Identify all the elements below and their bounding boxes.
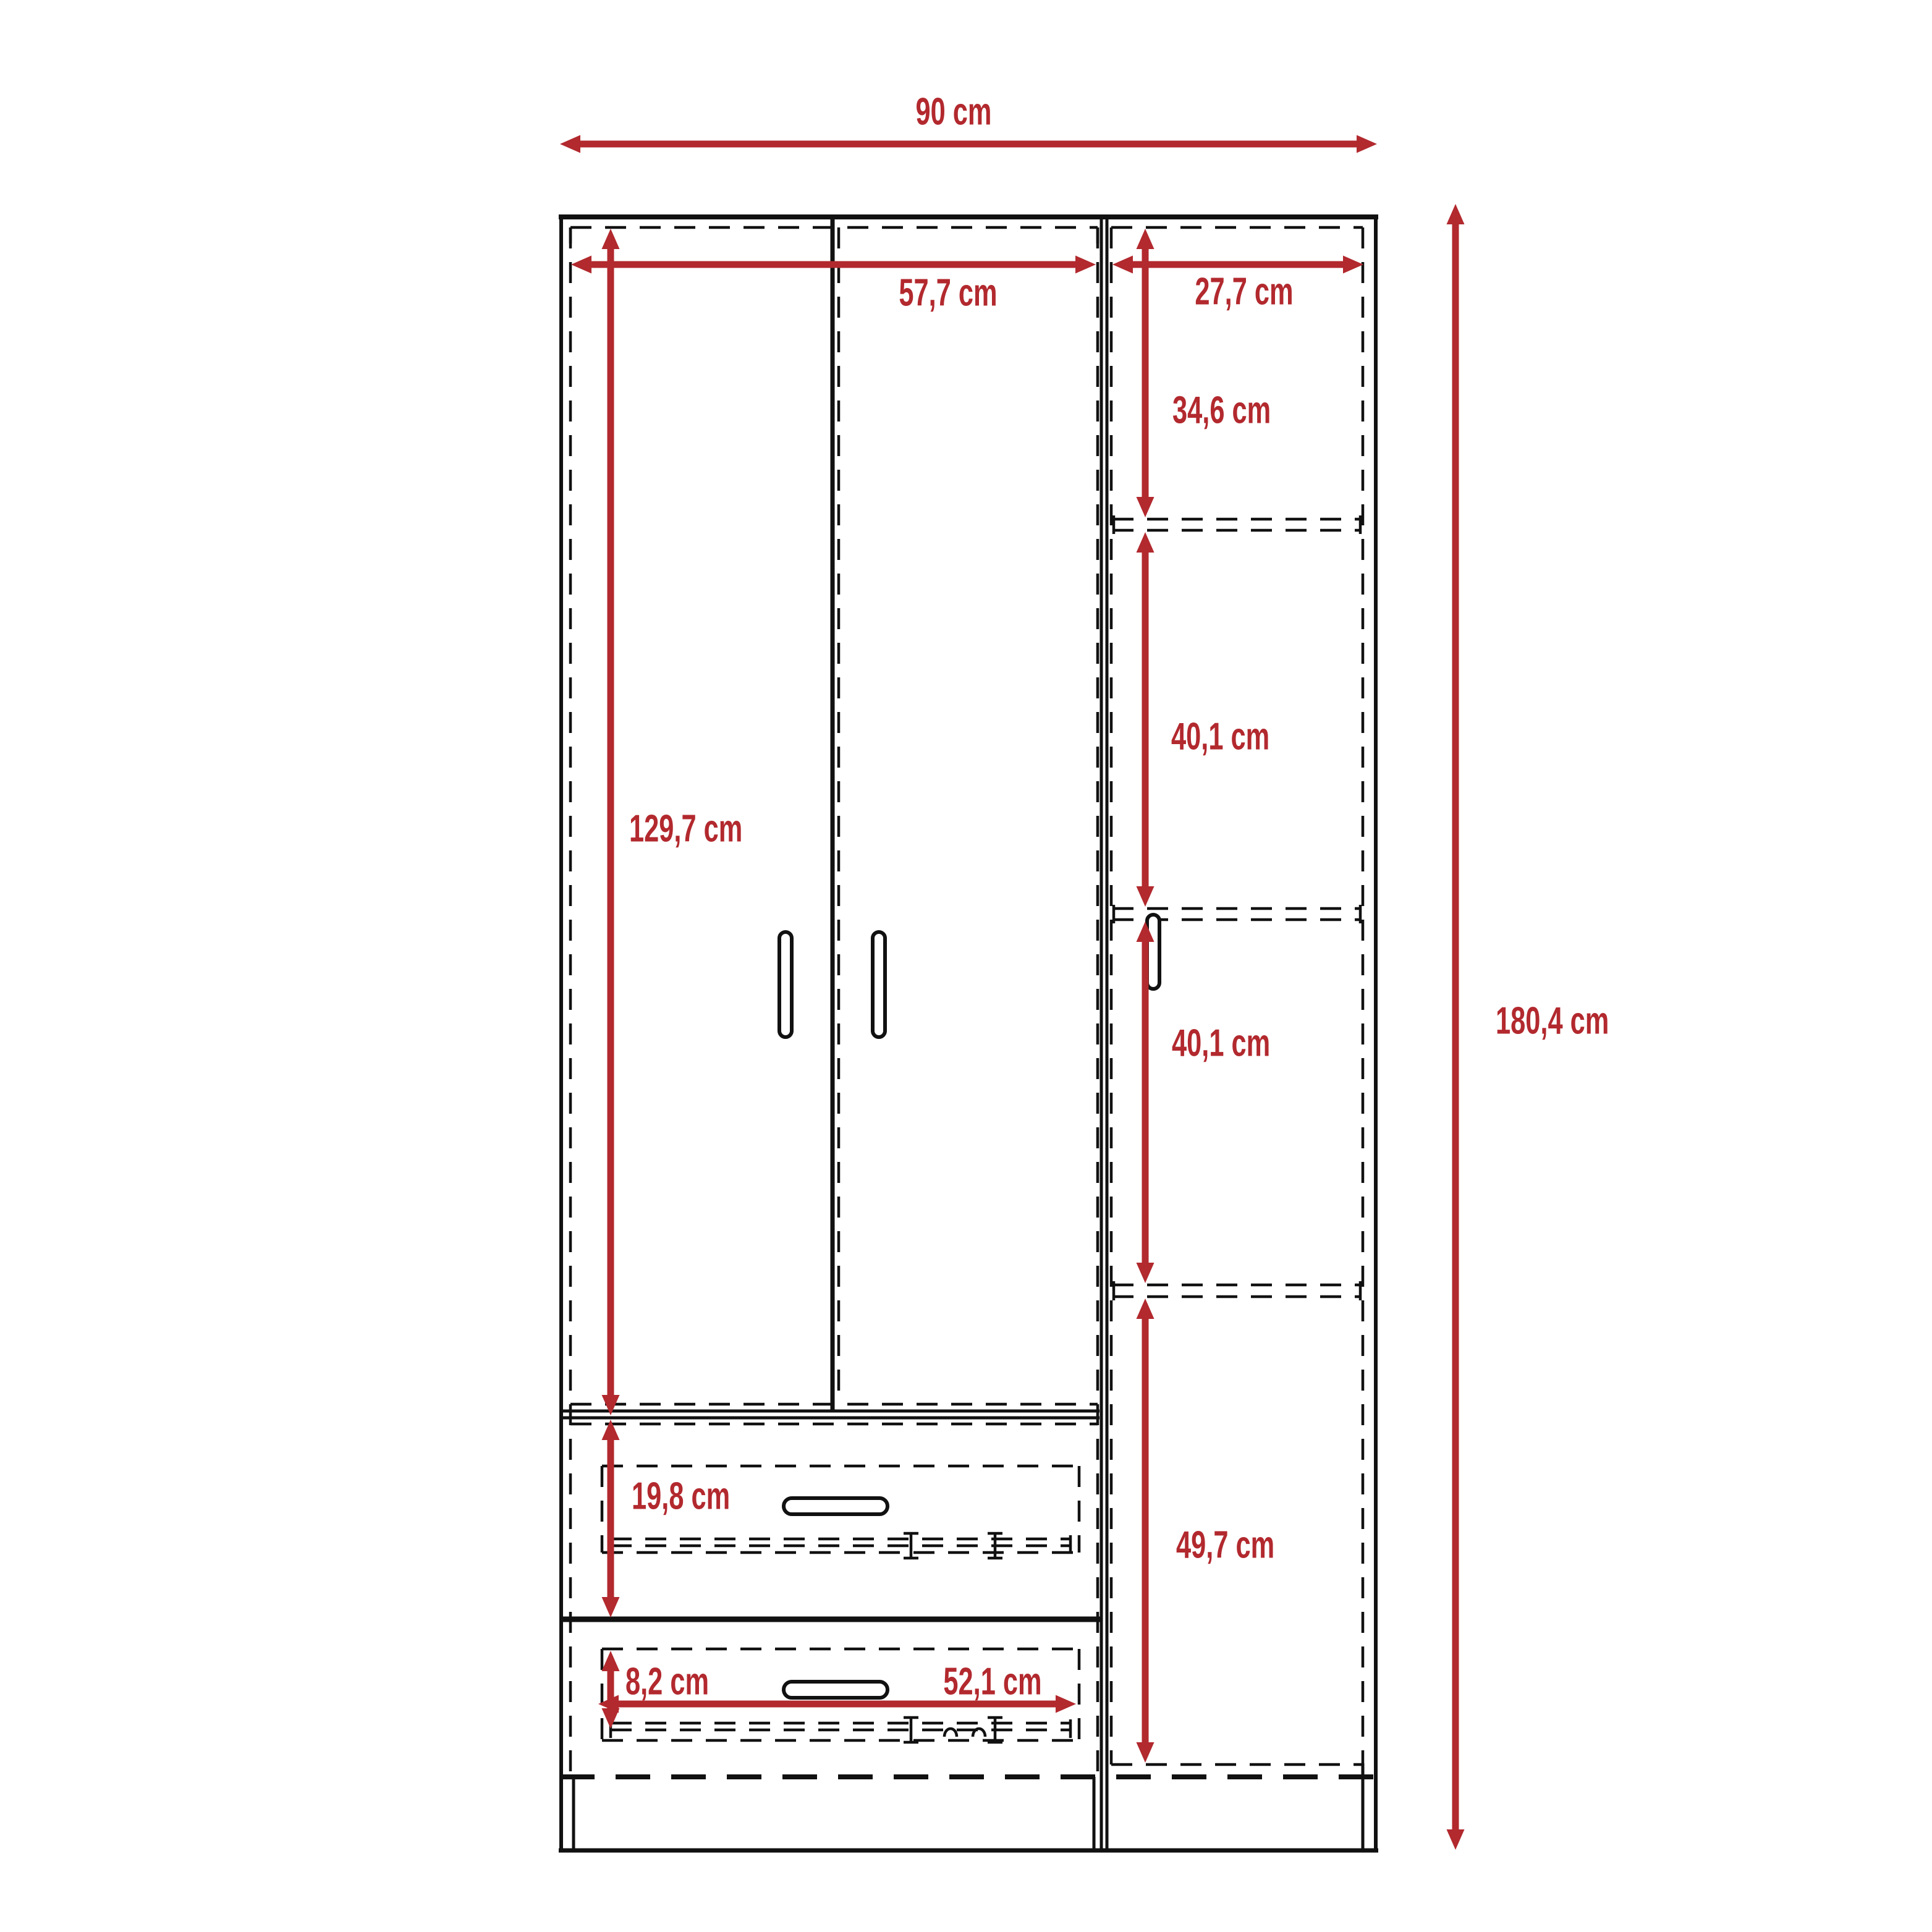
dim-label-right-shelf-top: 34,6 cm <box>1172 389 1271 431</box>
dimension-drawing-canvas: 90 cm 57,7 cm 27,7 cm 129,7 cm <box>0 0 1932 1932</box>
arrowhead-right-icon <box>1075 256 1096 274</box>
arrowhead-up-icon <box>1137 229 1155 249</box>
dim-right-shelf-mid: 40,1 cm <box>1137 532 1270 907</box>
dim-label-top-drawer: 19,8 cm <box>632 1475 730 1517</box>
top-drawer-handle <box>784 1498 888 1514</box>
right-door-handle <box>1147 915 1159 989</box>
dim-label-right-shelf-lower: 40,1 cm <box>1172 1022 1270 1064</box>
arrowhead-up-icon <box>602 229 620 249</box>
middle-door-handle <box>873 932 885 1037</box>
left-door-handle <box>779 932 792 1037</box>
arrowhead-right-icon <box>1056 1695 1076 1713</box>
dim-door-height: 129,7 cm <box>602 229 743 1415</box>
drawer-clip-mark <box>944 1729 957 1737</box>
drawer-clip-mark <box>973 1729 985 1737</box>
dimension-annotations: 90 cm 57,7 cm 27,7 cm 129,7 cm <box>560 91 1609 1850</box>
dim-label-total-width: 90 cm <box>915 91 991 133</box>
dim-label-right-section-width: 27,7 cm <box>1195 271 1293 313</box>
dim-label-total-height: 180,4 cm <box>1496 1000 1609 1042</box>
arrowhead-down-icon <box>1137 1263 1155 1283</box>
dim-label-bottom-drawer-front: 8,2 cm <box>625 1661 709 1703</box>
arrowhead-left-icon <box>571 256 591 274</box>
dim-label-right-shelf-mid: 40,1 cm <box>1171 716 1269 758</box>
dim-right-bottom: 49,7 cm <box>1137 1299 1275 1763</box>
arrowhead-up-icon <box>1447 204 1465 224</box>
dim-total-width: 90 cm <box>560 91 1377 153</box>
base-plinth <box>560 1763 1376 1850</box>
arrowhead-down-icon <box>1137 1742 1155 1763</box>
dim-bottom-drawer-front: 8,2 cm <box>602 1651 710 1729</box>
dim-total-height: 180,4 cm <box>1447 204 1609 1850</box>
arrowhead-up-icon <box>1137 1299 1155 1319</box>
bottom-drawer-handle <box>784 1682 888 1698</box>
arrowhead-down-icon <box>1137 886 1155 907</box>
left-door-section <box>559 217 1099 1777</box>
arrowhead-down-icon <box>1447 1829 1465 1850</box>
dim-label-right-bottom: 49,7 cm <box>1176 1524 1274 1566</box>
dim-right-section-width: 27,7 cm <box>1112 256 1363 313</box>
arrowhead-left-icon <box>1112 256 1133 274</box>
wardrobe-dimension-diagram: 90 cm 57,7 cm 27,7 cm 129,7 cm <box>0 0 1932 1932</box>
arrowhead-right-icon <box>1357 135 1377 153</box>
arrowhead-down-icon <box>1137 497 1155 517</box>
arrowhead-up-icon <box>602 1651 620 1671</box>
dim-top-drawer: 19,8 cm <box>602 1420 731 1617</box>
dim-label-drawer-width: 52,1 cm <box>943 1661 1041 1703</box>
arrowhead-right-icon <box>1343 256 1363 274</box>
arrowhead-left-icon <box>560 135 580 153</box>
dim-label-left-section-width: 57,7 cm <box>899 272 997 314</box>
arrowhead-down-icon <box>602 1597 620 1617</box>
arrowhead-up-icon <box>1137 532 1155 553</box>
dim-label-door-height: 129,7 cm <box>629 808 742 850</box>
